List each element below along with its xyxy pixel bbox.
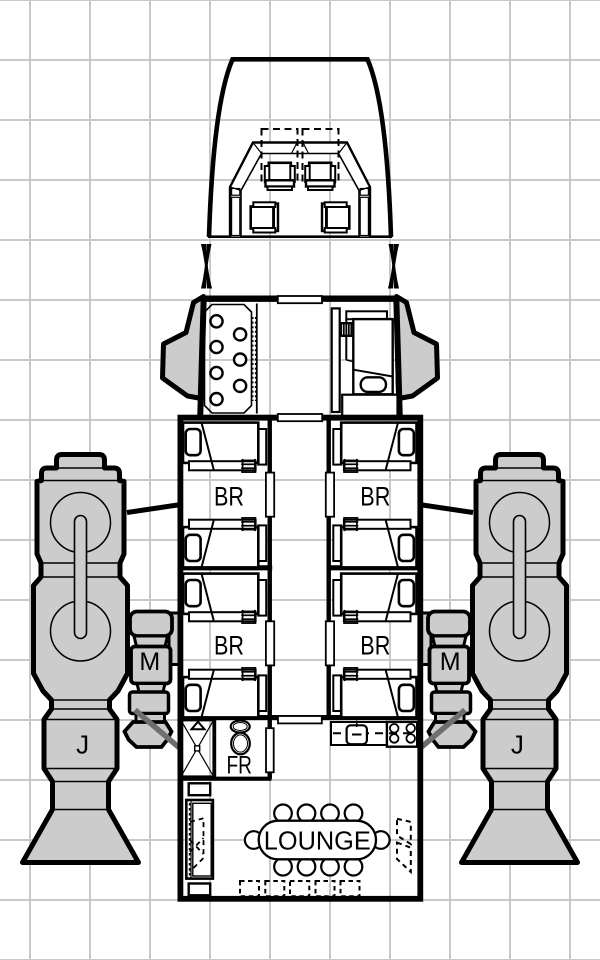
svg-text:J: J (511, 730, 524, 760)
svg-text:M: M (139, 648, 160, 676)
svg-text:FR: FR (226, 751, 252, 779)
svg-text:M: M (440, 648, 461, 676)
svg-text:BR: BR (360, 482, 390, 512)
svg-text:J: J (76, 730, 89, 760)
svg-text:BR: BR (214, 631, 244, 661)
svg-text:BR: BR (360, 631, 390, 661)
svg-text:LOUNGE: LOUNGE (264, 826, 371, 856)
svg-text:BR: BR (214, 482, 244, 512)
